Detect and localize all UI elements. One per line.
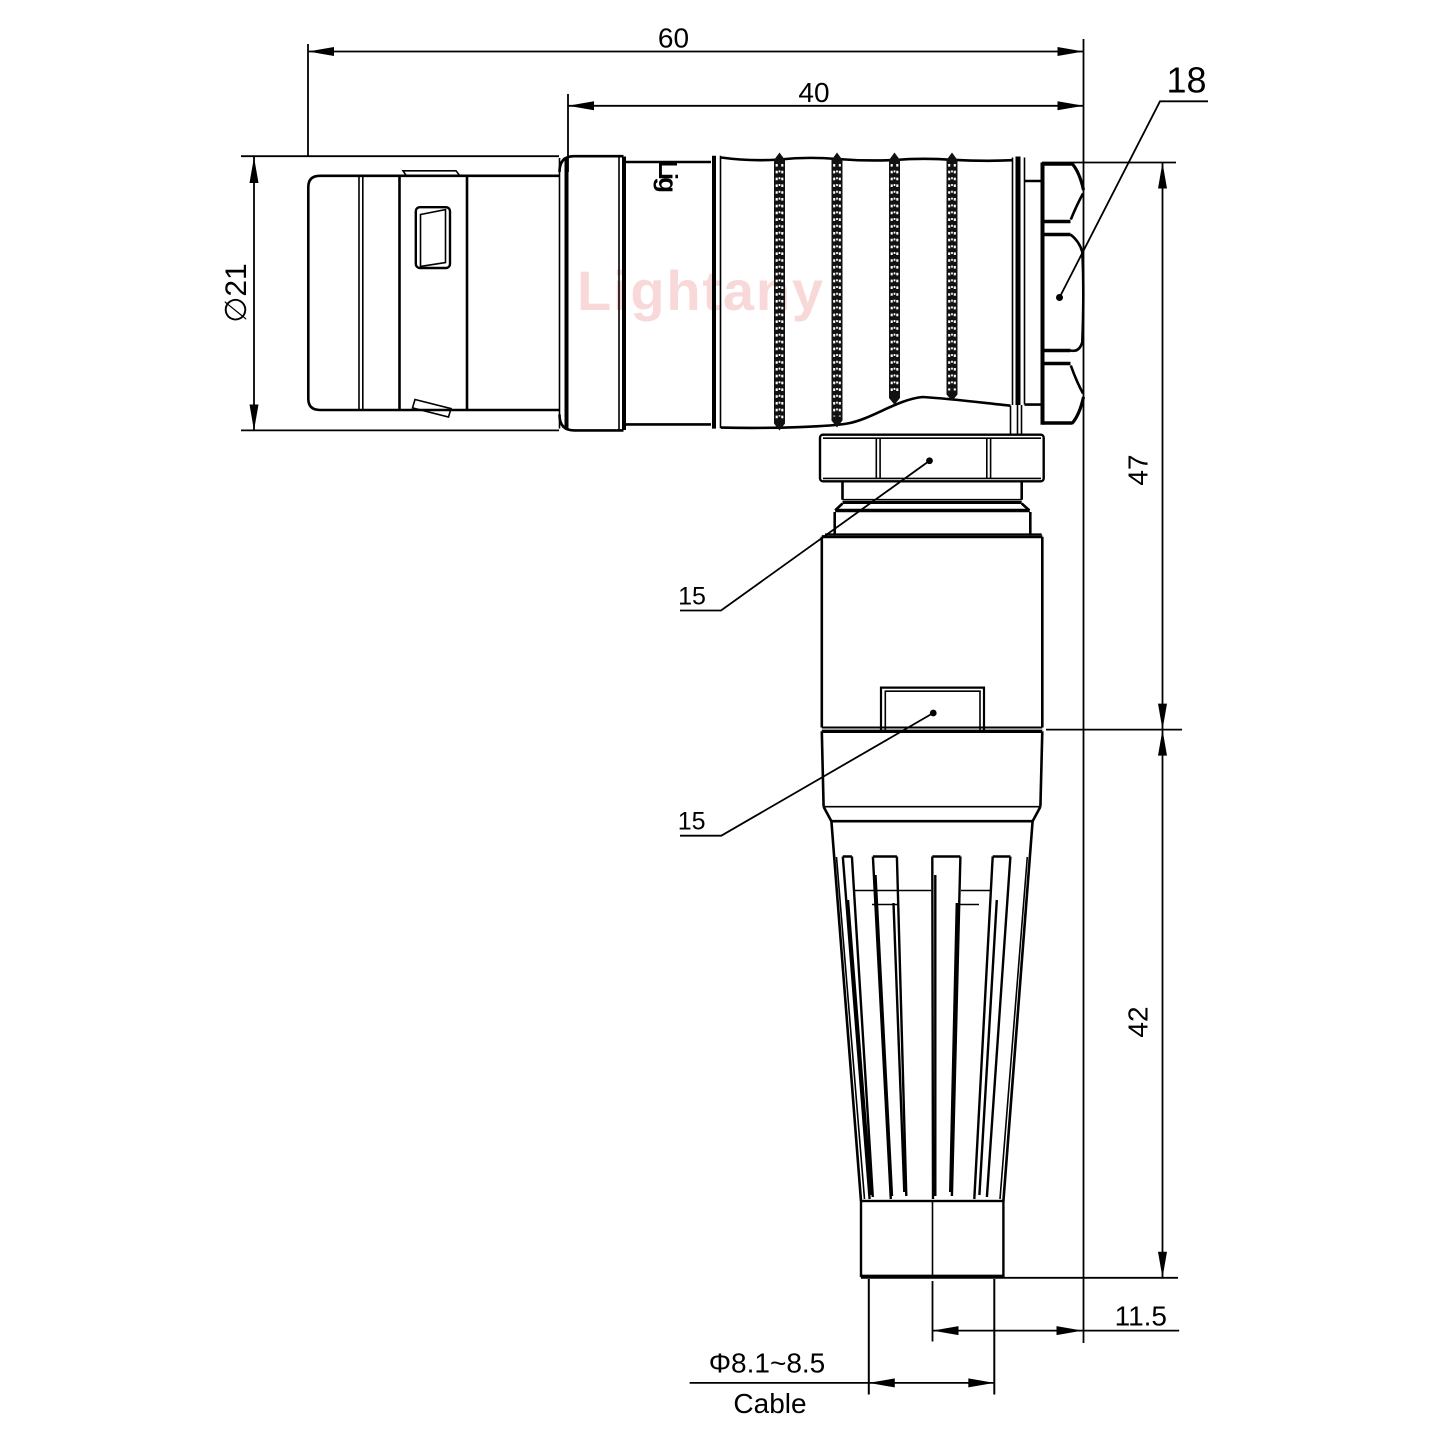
svg-text:11.5: 11.5 [1115, 1300, 1167, 1331]
svg-text:Cable: Cable [733, 1388, 806, 1419]
svg-text:15: 15 [678, 583, 706, 611]
svg-text:15: 15 [678, 808, 706, 836]
svg-text:40: 40 [798, 77, 829, 108]
svg-text:Lig: Lig [653, 160, 683, 192]
svg-text:Lightany: Lightany [577, 259, 823, 322]
svg-text:∅21: ∅21 [220, 263, 253, 323]
svg-text:18: 18 [1166, 60, 1206, 101]
svg-text:Φ8.1~8.5: Φ8.1~8.5 [709, 1348, 826, 1379]
svg-text:42: 42 [1123, 1006, 1154, 1037]
svg-text:60: 60 [658, 23, 689, 54]
svg-text:47: 47 [1123, 454, 1154, 485]
